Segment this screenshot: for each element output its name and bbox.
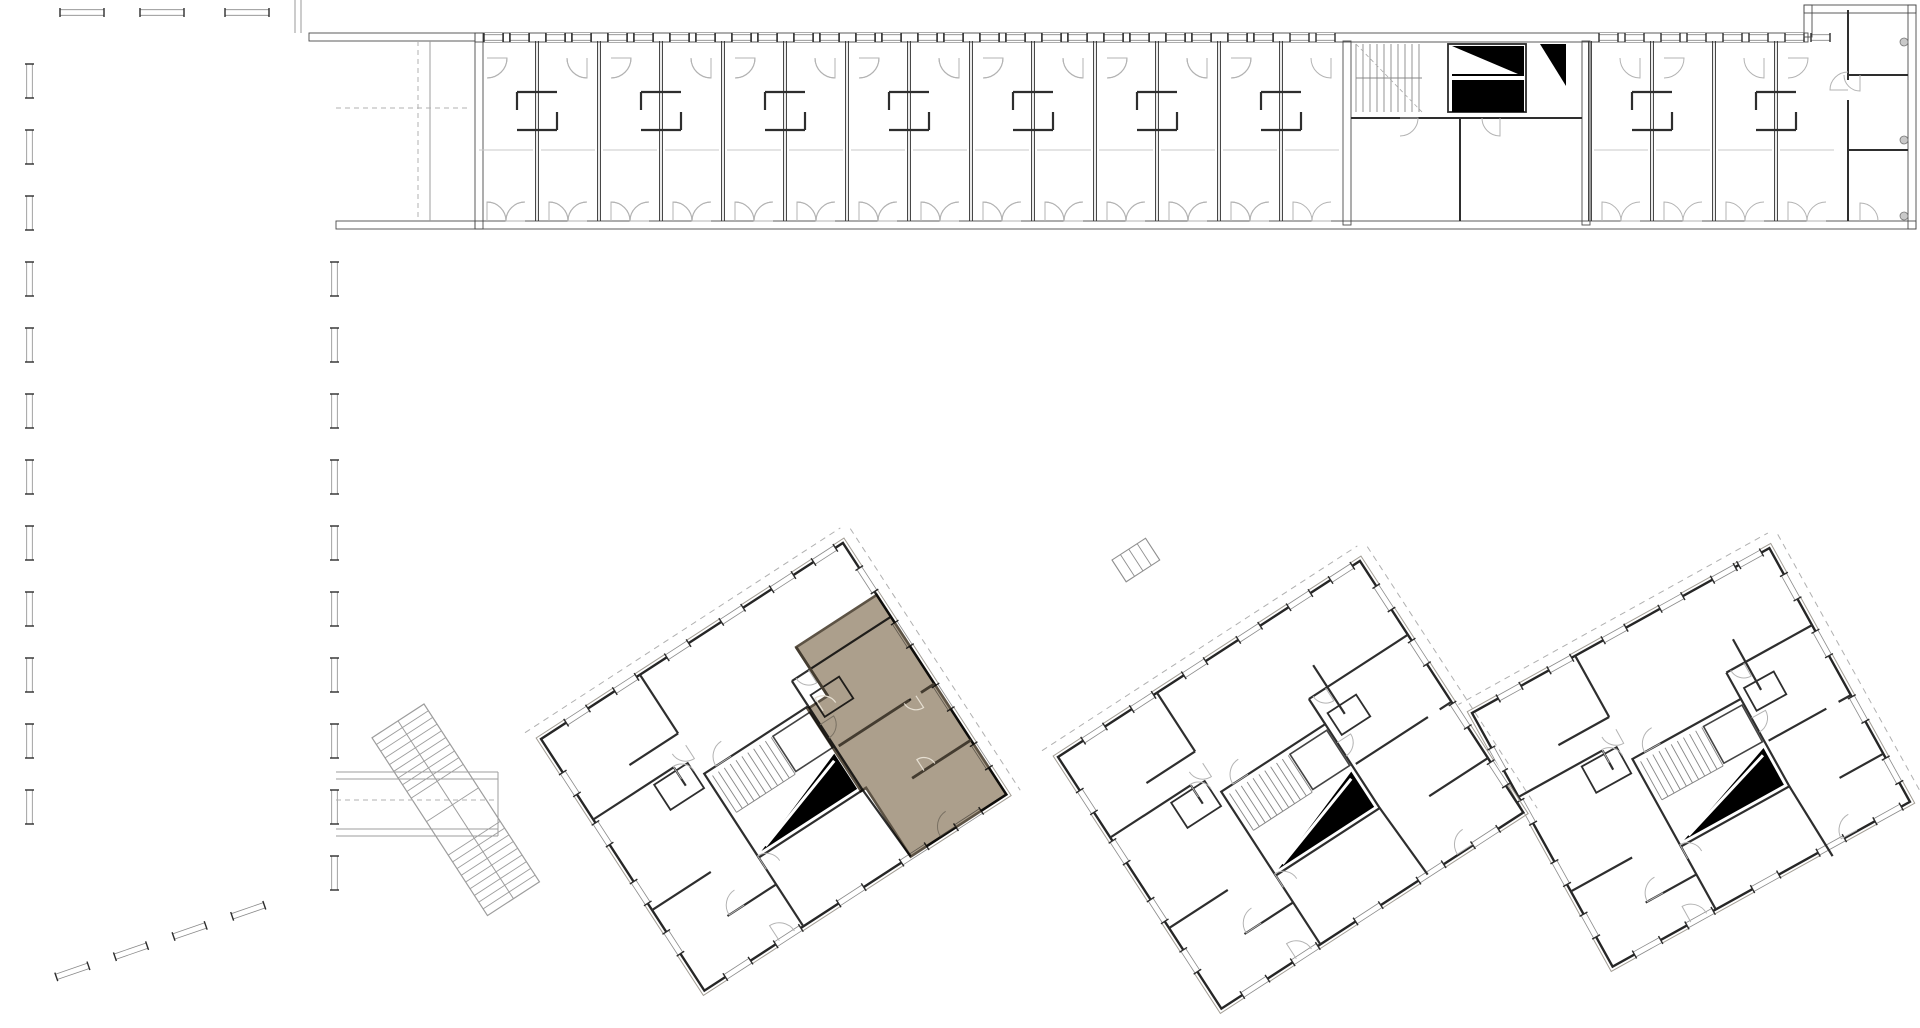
north-wing-building	[475, 5, 1916, 229]
tower-3-building	[1456, 529, 1920, 980]
external-stair	[372, 704, 539, 916]
tower-2-building	[1042, 542, 1538, 1018]
wing-stair-core	[1343, 41, 1590, 225]
west-slab-windows	[25, 8, 339, 981]
floor-plan	[0, 0, 1920, 1028]
small-stair-block	[1112, 538, 1160, 582]
site-plan-svg	[0, 0, 1920, 1028]
connector-block	[295, 0, 475, 229]
south-facade-windows	[55, 901, 266, 981]
tower-1-building	[525, 524, 1021, 1000]
